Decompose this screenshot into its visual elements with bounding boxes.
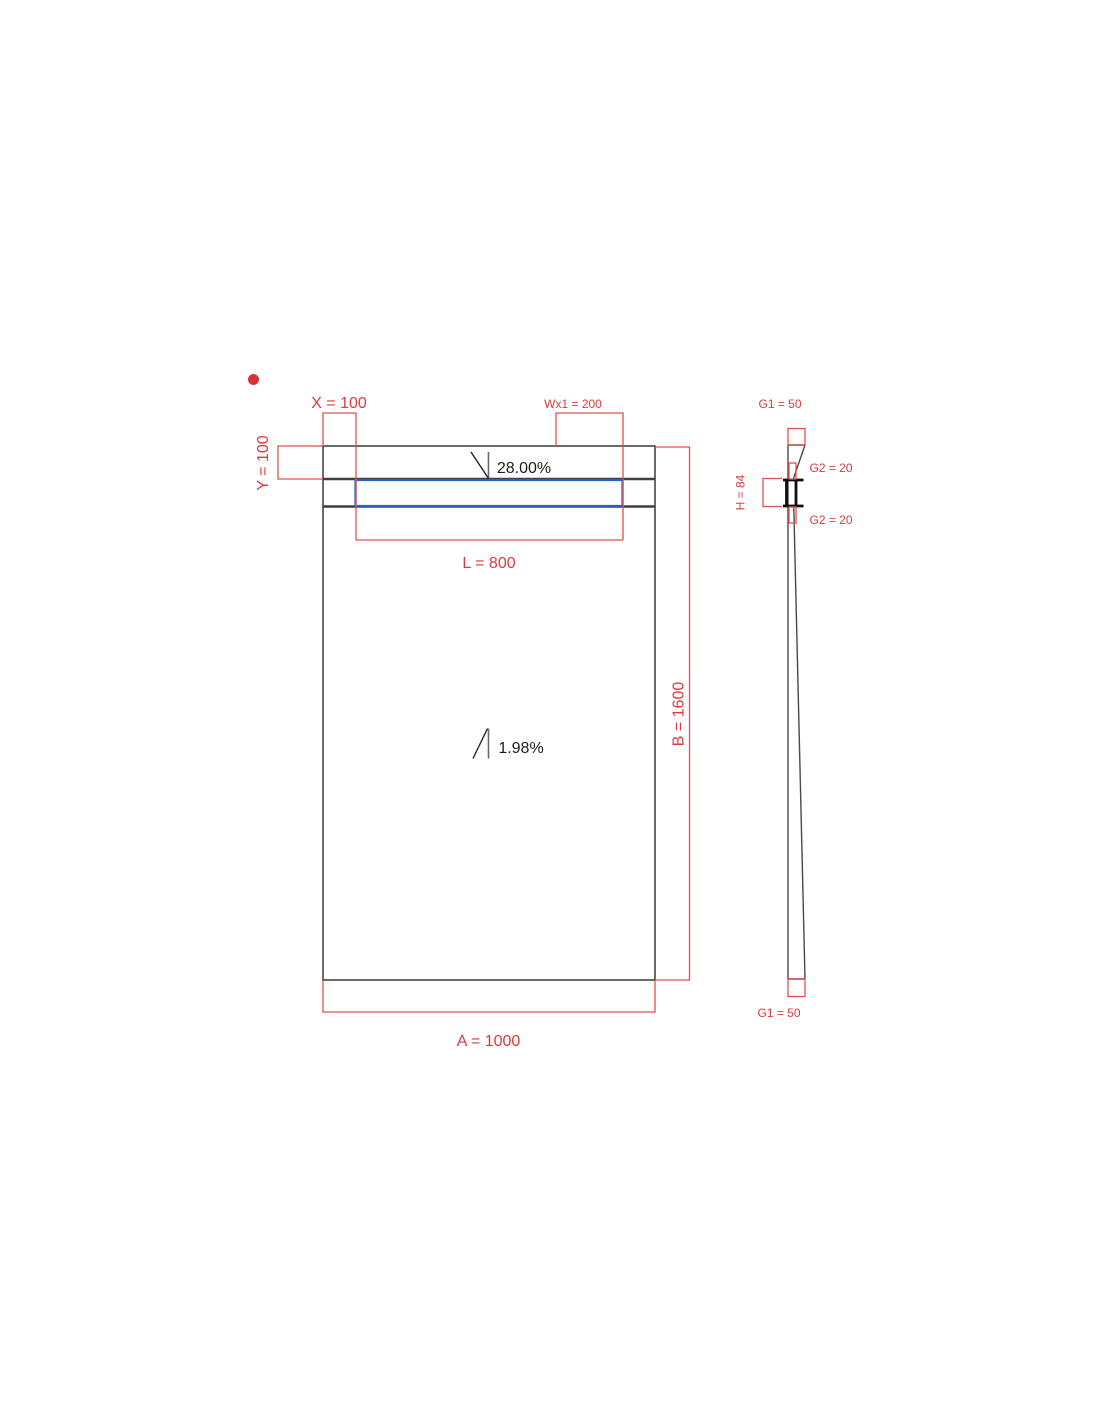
tray-outline (323, 446, 655, 980)
wedge-gentle-slope (794, 508, 805, 980)
label-x-offset: X = 100 (311, 395, 367, 412)
label-channel-length: L = 800 (462, 555, 515, 572)
label-g2-upper: G2 = 20 (809, 461, 852, 475)
dim-bracket-h (763, 479, 782, 507)
dim-box-wx1 (556, 413, 623, 446)
label-g1-bottom: G1 = 50 (757, 1006, 800, 1020)
label-slope-upper: 28.00% (497, 460, 551, 477)
wedge-steep-slope (794, 445, 806, 479)
label-length-b: B = 1600 (671, 682, 688, 747)
side-view: G1 = 50 G2 = 20 H = 84 G2 = 20 G1 = 50 (734, 397, 853, 1020)
dim-lines-l (356, 446, 623, 540)
label-g1-top: G1 = 50 (758, 397, 801, 411)
dim-box-g2-upper (789, 463, 796, 479)
drain-channel (356, 480, 623, 506)
label-g2-lower: G2 = 20 (809, 513, 852, 527)
label-h: H = 84 (734, 474, 748, 510)
dim-lines-a (323, 980, 655, 1012)
technical-drawing-page: X = 100 Wx1 = 200 Y = 100 28.00% L = 800… (0, 0, 1100, 1422)
dim-box-g1-bottom (788, 979, 805, 997)
dim-box-y (278, 446, 323, 479)
label-wx1: Wx1 = 200 (544, 397, 602, 411)
slope-lower-diagonal-line (473, 729, 488, 759)
label-slope-lower: 1.98% (498, 740, 543, 757)
slope-marker-upper (471, 452, 489, 479)
plan-view: X = 100 Wx1 = 200 Y = 100 28.00% L = 800… (248, 374, 690, 1050)
slope-upper-diagonal-line (471, 452, 489, 479)
label-y-offset: Y = 100 (255, 435, 272, 490)
marker-dot (248, 374, 259, 385)
dim-box-x (323, 413, 356, 446)
label-width-a: A = 1000 (457, 1033, 521, 1050)
dim-box-g2-lower (789, 507, 796, 523)
slope-marker-lower (473, 729, 489, 759)
dim-box-g1-top (788, 429, 805, 446)
shower-tray-drawing: X = 100 Wx1 = 200 Y = 100 28.00% L = 800… (0, 0, 1100, 1422)
